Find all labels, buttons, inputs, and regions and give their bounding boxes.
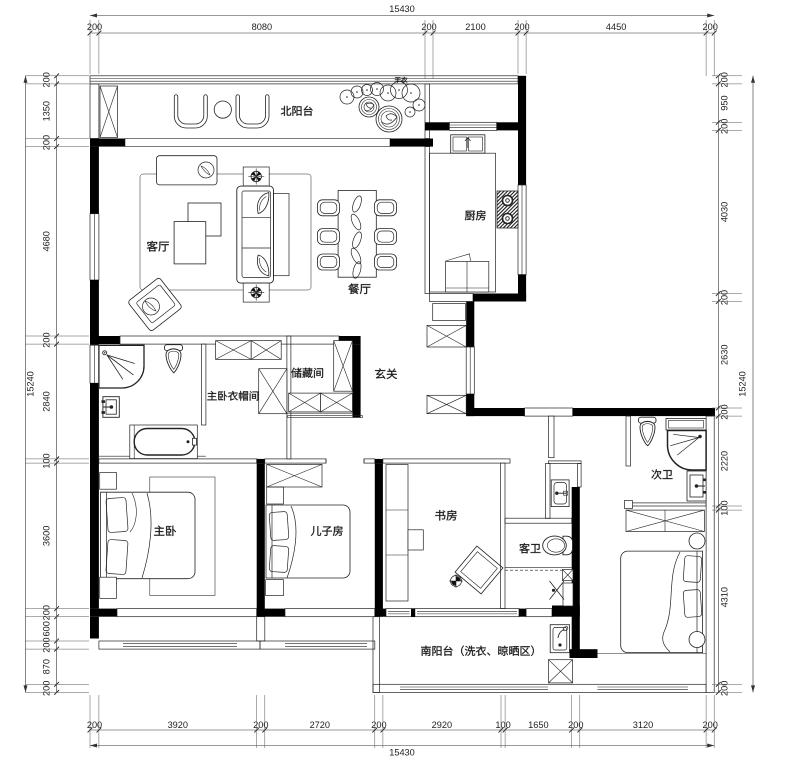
svg-text:200: 200 — [719, 72, 729, 87]
svg-text:1650: 1650 — [528, 720, 548, 730]
svg-text:870: 870 — [42, 659, 52, 674]
svg-text:200: 200 — [720, 290, 730, 305]
svg-text:200: 200 — [371, 720, 386, 730]
svg-text:200: 200 — [253, 720, 268, 730]
svg-text:15240: 15240 — [26, 371, 36, 397]
svg-text:200: 200 — [703, 720, 718, 730]
svg-text:15240: 15240 — [738, 371, 748, 397]
svg-text:200: 200 — [42, 332, 52, 347]
svg-text:200: 200 — [41, 72, 51, 87]
svg-text:100: 100 — [495, 720, 510, 730]
svg-text:200: 200 — [703, 22, 718, 32]
svg-text:200: 200 — [568, 720, 583, 730]
svg-text:2840: 2840 — [42, 391, 52, 411]
svg-text:200: 200 — [514, 22, 529, 32]
svg-text:3120: 3120 — [633, 720, 653, 730]
svg-text:4030: 4030 — [719, 202, 729, 222]
svg-text:2220: 2220 — [720, 451, 730, 471]
svg-text:100: 100 — [42, 453, 52, 468]
svg-text:200: 200 — [41, 637, 51, 652]
svg-text:100: 100 — [720, 500, 730, 515]
svg-text:15430: 15430 — [389, 4, 415, 14]
svg-text:2720: 2720 — [310, 720, 330, 730]
svg-text:200: 200 — [421, 22, 436, 32]
svg-text:4680: 4680 — [42, 231, 52, 251]
svg-text:600: 600 — [42, 621, 52, 636]
svg-text:15430: 15430 — [389, 748, 415, 758]
svg-text:4310: 4310 — [720, 587, 730, 607]
svg-text:200: 200 — [42, 135, 52, 150]
svg-text:8080: 8080 — [252, 22, 272, 32]
svg-text:2920: 2920 — [432, 720, 452, 730]
svg-text:950: 950 — [720, 95, 730, 110]
svg-text:200: 200 — [41, 681, 51, 696]
svg-text:200: 200 — [87, 22, 102, 32]
svg-text:3600: 3600 — [42, 526, 52, 546]
svg-text:1350: 1350 — [42, 101, 52, 121]
svg-text:2100: 2100 — [465, 22, 485, 32]
svg-text:200: 200 — [720, 404, 730, 419]
svg-text:4450: 4450 — [606, 22, 626, 32]
svg-text:200: 200 — [42, 605, 52, 620]
svg-text:2630: 2630 — [720, 345, 730, 365]
svg-text:3920: 3920 — [168, 720, 188, 730]
svg-text:200: 200 — [719, 681, 729, 696]
svg-text:200: 200 — [719, 119, 729, 134]
svg-text:200: 200 — [87, 720, 102, 730]
